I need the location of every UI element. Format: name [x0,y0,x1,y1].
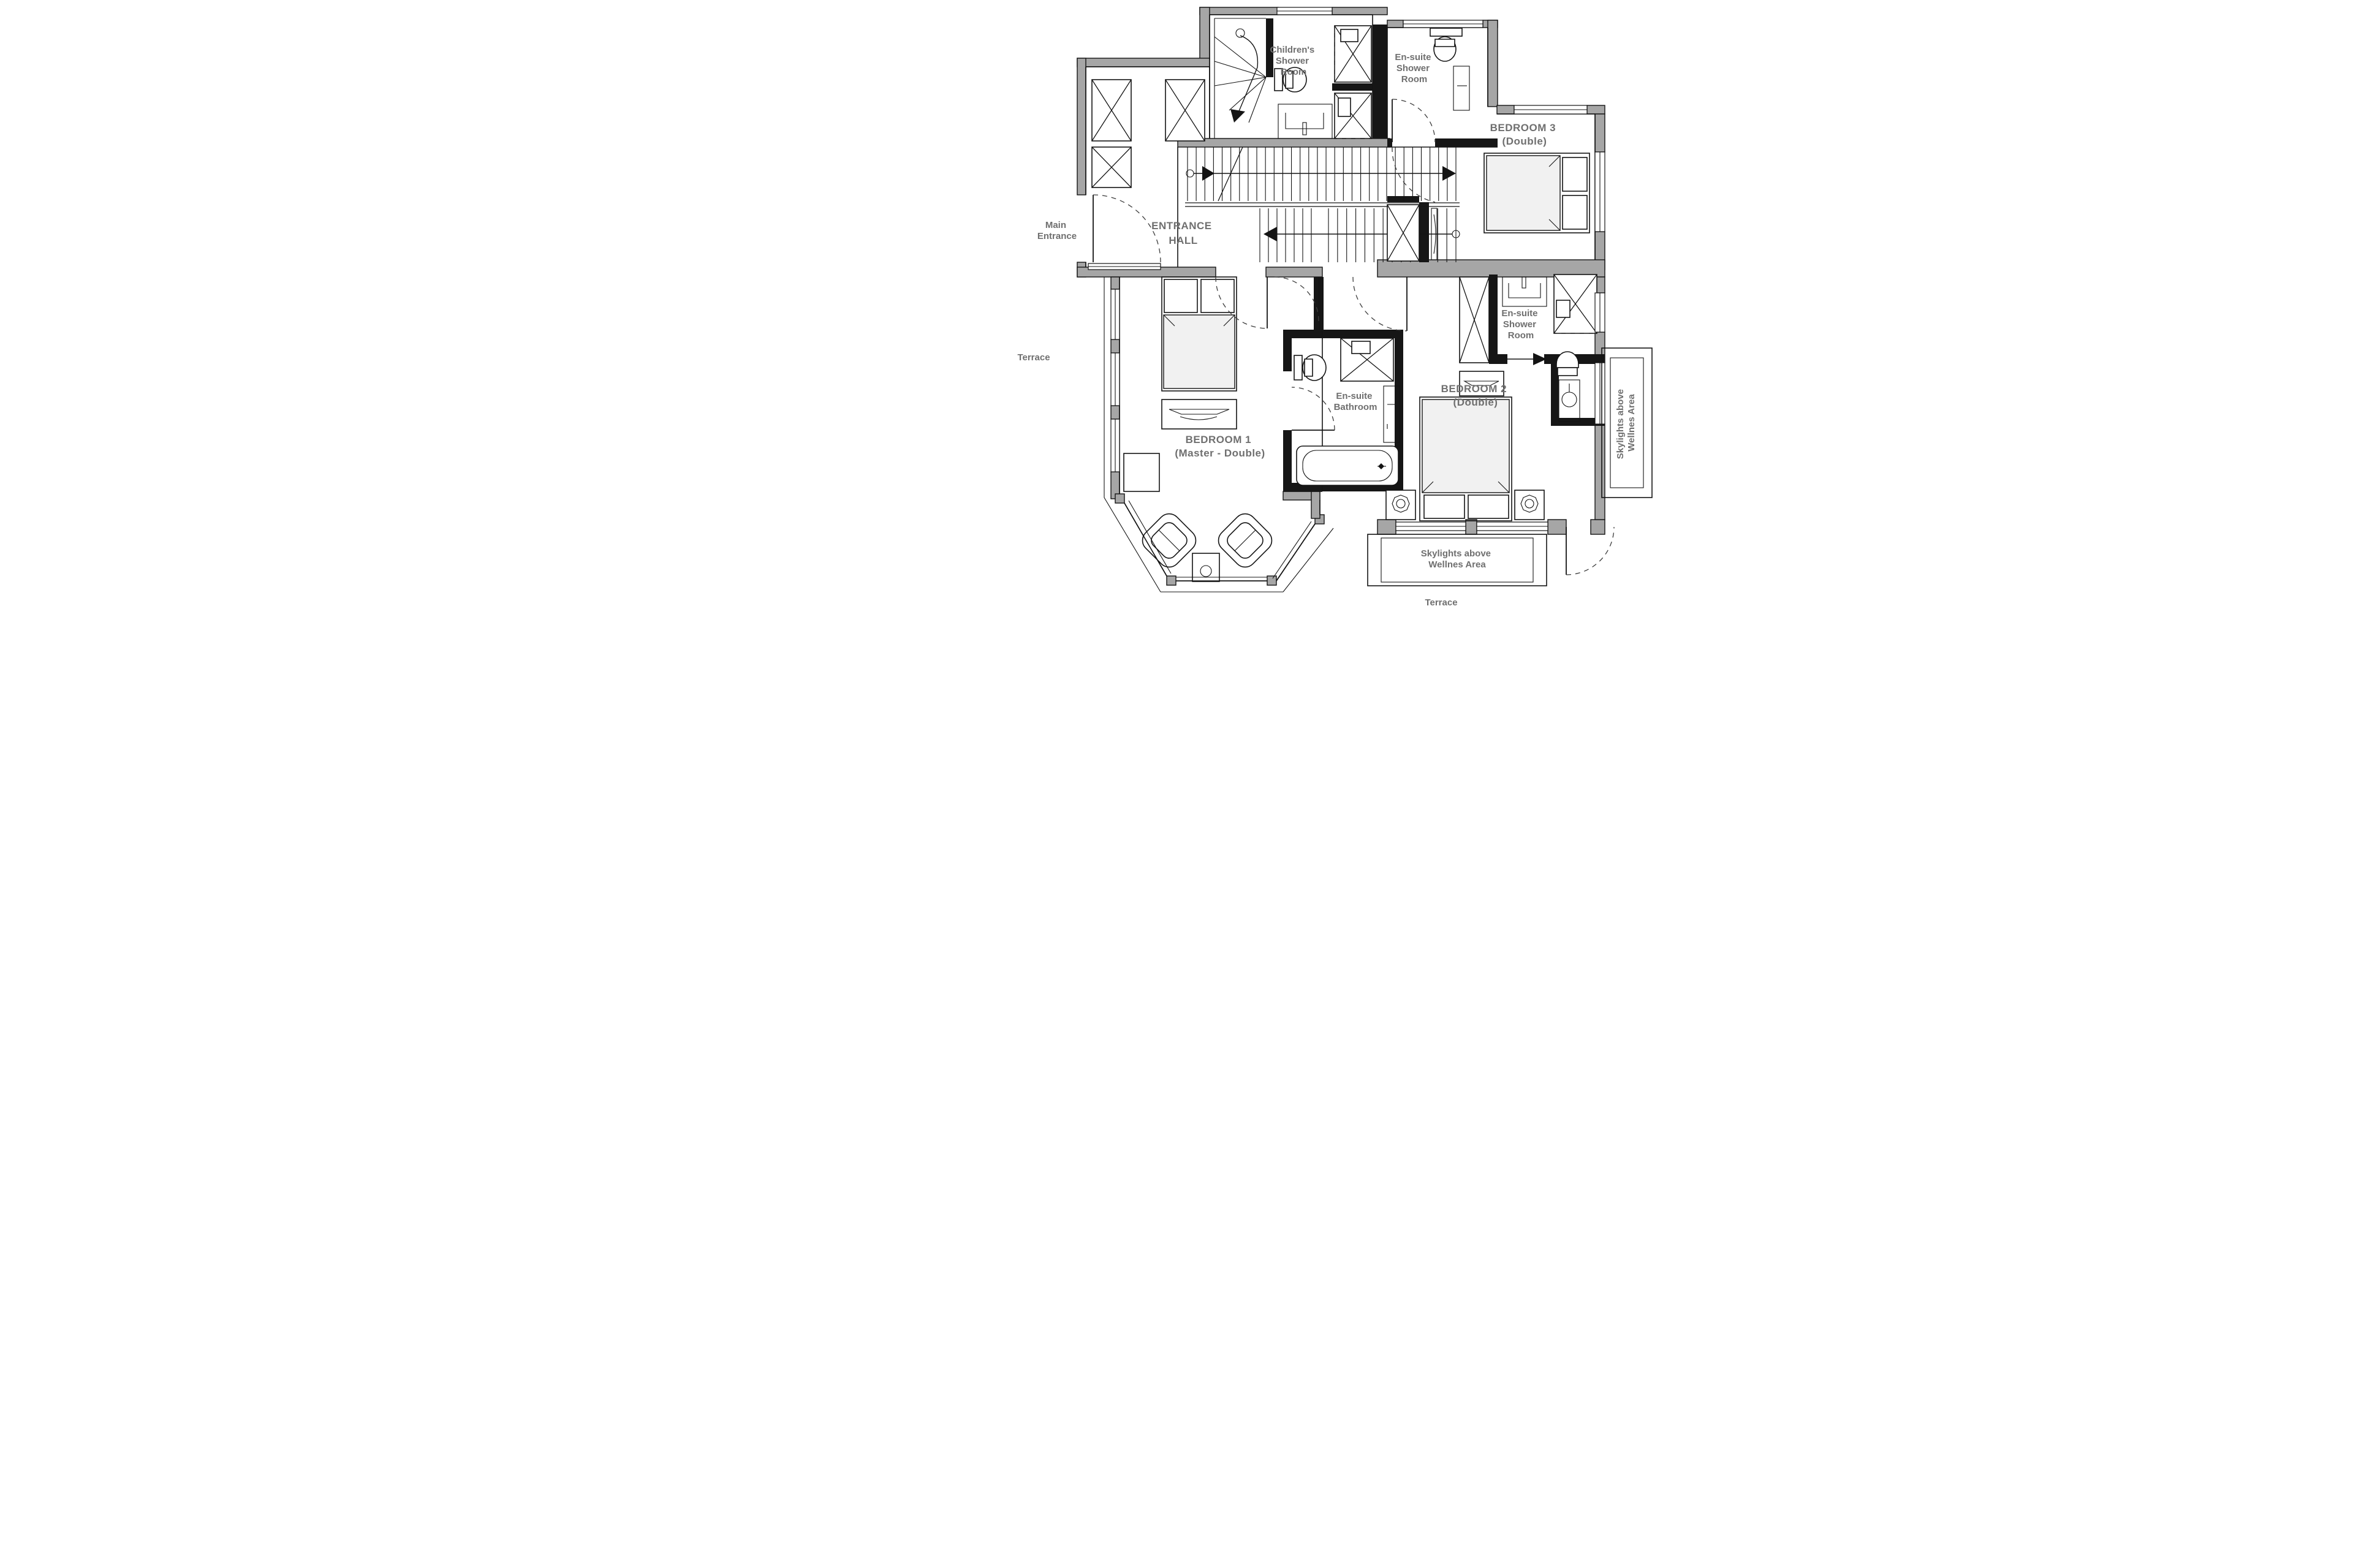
terrace-door [1566,527,1614,575]
window [1176,577,1267,581]
bench-dresser [1162,400,1237,429]
wardrobe [1165,80,1205,141]
shower-cubicle [1341,338,1393,381]
skylights-bottom-label: Skylights above Wellnes Area [1421,548,1493,570]
ensuite-shower-bed2-label: En-suite Shower Room [1501,308,1540,341]
window [1595,293,1605,332]
terrace-left-label: Terrace [1017,352,1050,363]
desk [1124,453,1159,491]
armchair [1214,509,1276,572]
label-line: HALL [1169,235,1197,246]
bedroom1-label: BEDROOM 1 (Master - Double) [1175,434,1265,459]
wardrobe [1460,277,1489,363]
window [1111,289,1120,339]
washbasin-symbol [1278,104,1332,138]
shower-cubicle [1554,275,1597,333]
bedroom3-label: BEDROOM 3 (Double) [1490,122,1559,147]
double-bed [1162,277,1237,391]
armchair [1138,509,1200,572]
label-line: ENTRANCE [1151,220,1211,232]
winder-staircase [1214,18,1266,138]
label-line: Wellnes Area [1428,559,1486,570]
label-line: Skylights above [1421,548,1491,559]
main-entrance-door [1093,195,1161,262]
window [1273,521,1315,581]
label-line: Room [1281,67,1307,77]
shower-cubicle [1335,26,1371,82]
ensuite-bathroom-label: En-suite Bathroom [1334,391,1377,412]
window [1477,522,1548,531]
label-line: Skylights above [1615,389,1626,459]
wardrobe [1387,205,1419,261]
wardrobe [1092,147,1131,187]
label-line: Shower [1396,63,1430,74]
ensuite-shower-top-label: En-suite Shower Room [1395,52,1433,85]
label-line: Room [1508,330,1534,341]
label-line: Terrace [1017,352,1050,363]
sliding-door-arrow [1507,353,1547,365]
washbasin-symbol [1453,66,1469,110]
label-line: BEDROOM 2 [1441,383,1507,395]
double-bed [1420,397,1512,521]
childrens-shower-room-fixtures [1275,26,1371,138]
window [1111,419,1120,472]
label-line: Room [1401,74,1428,85]
label-line: En-suite [1395,52,1431,62]
window [1111,353,1120,406]
label-line: Bathroom [1334,402,1377,412]
bedside-lamp-table [1386,490,1415,520]
label-line: Shower [1276,56,1309,66]
skylights-right-label: Skylights above Wellnes Area [1615,387,1637,459]
corridor-door [1275,277,1319,321]
label-line: Children's [1270,45,1315,55]
toilet-symbol [1556,352,1578,376]
window [1514,105,1587,114]
ensuite-shower-top-door [1392,99,1435,202]
label-line: Wellnes Area [1626,394,1637,452]
window [1088,263,1161,270]
bathtub-symbol [1297,446,1398,485]
toilet-symbol [1430,28,1462,61]
toilet-symbol [1294,355,1326,381]
label-line: Entrance [1037,231,1077,241]
washbasin-symbol [1559,380,1580,422]
ensuite-shower-top-fixtures [1430,28,1469,110]
ensuite-shower-bed2-fixtures [1502,275,1597,422]
label-line: Shower [1503,319,1536,330]
bedroom3-fixtures [1387,153,1590,261]
label-line: Terrace [1425,597,1457,608]
double-bed [1484,153,1590,233]
label-line: En-suite [1501,308,1537,319]
floor-plan-page: Children's Shower Room En-suite Shower R… [696,0,1657,640]
bedroom2-door [1353,277,1407,331]
bedroom1-fixtures [1124,277,1276,581]
label-line: BEDROOM 3 [1490,122,1556,134]
window [1277,7,1332,15]
window [1403,20,1483,28]
entrance-hall-label: ENTRANCE HALL [1151,220,1215,246]
label-line: (Double) [1502,135,1547,147]
main-entrance-label: Main Entrance [1037,220,1077,241]
washbasin-symbol [1502,277,1547,306]
terrace-bottom-label: Terrace [1425,597,1457,608]
window [1595,363,1605,424]
shower-cubicle [1335,93,1371,138]
wardrobe [1092,80,1131,141]
window [1396,522,1466,531]
label-line: BEDROOM 1 [1186,434,1251,445]
label-line: (Double) [1453,396,1498,408]
bedside-lamp-table [1515,490,1544,520]
window [1595,152,1605,232]
label-line: En-suite [1336,391,1372,401]
label-line: (Master - Double) [1175,447,1265,459]
floor-plan: Children's Shower Room En-suite Shower R… [696,0,1657,640]
label-line: Main [1045,220,1066,230]
